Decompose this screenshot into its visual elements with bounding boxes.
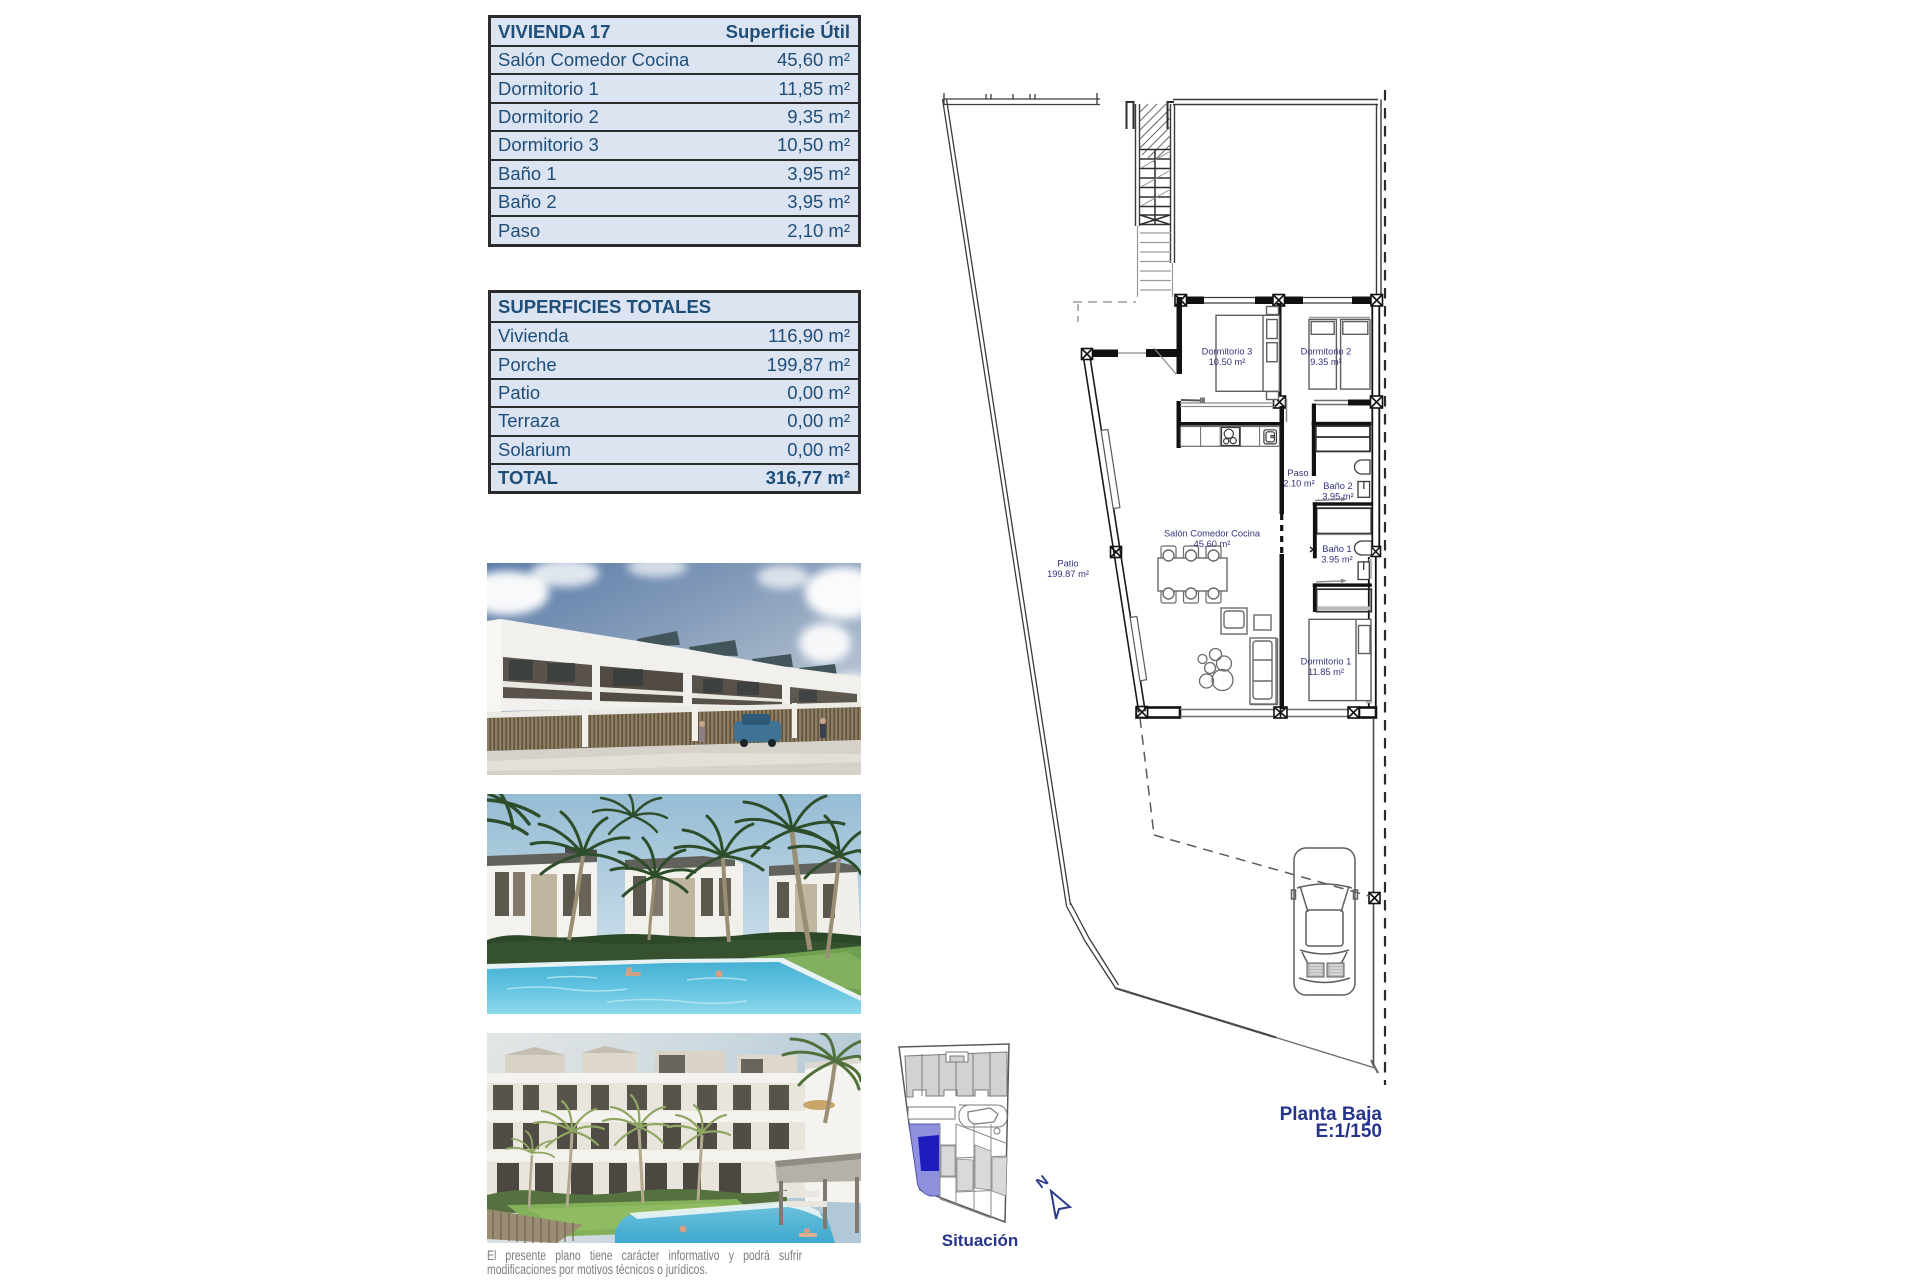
svg-text:Salón Comedor Cocina: Salón Comedor Cocina	[1164, 529, 1261, 539]
svg-text:E:1/150: E:1/150	[1315, 1121, 1382, 1142]
svg-text:Dormitorio 1: Dormitorio 1	[1301, 657, 1352, 667]
svg-text:199.87 m²: 199.87 m²	[1047, 569, 1089, 579]
svg-text:3.95 m²: 3.95 m²	[1321, 555, 1353, 565]
svg-text:Baño 1: Baño 1	[1322, 544, 1351, 554]
svg-text:3.95 m²: 3.95 m²	[1322, 492, 1354, 502]
svg-text:N: N	[1033, 1172, 1052, 1192]
svg-text:Patio: Patio	[1057, 559, 1078, 569]
svg-text:45.60 m²: 45.60 m²	[1194, 539, 1231, 549]
svg-text:9.35 m²: 9.35 m²	[1310, 357, 1342, 367]
svg-text:11.85 m²: 11.85 m²	[1308, 667, 1344, 677]
svg-text:Paso: Paso	[1287, 468, 1308, 478]
svg-text:2.10 m²: 2.10 m²	[1283, 479, 1315, 489]
svg-text:Dormitorio 3: Dormitorio 3	[1202, 347, 1253, 357]
svg-text:10.50 m²: 10.50 m²	[1209, 357, 1246, 367]
svg-text:Baño 2: Baño 2	[1323, 481, 1352, 491]
svg-text:Situación: Situación	[942, 1231, 1019, 1250]
svg-text:Dormitorio 2: Dormitorio 2	[1301, 347, 1352, 357]
